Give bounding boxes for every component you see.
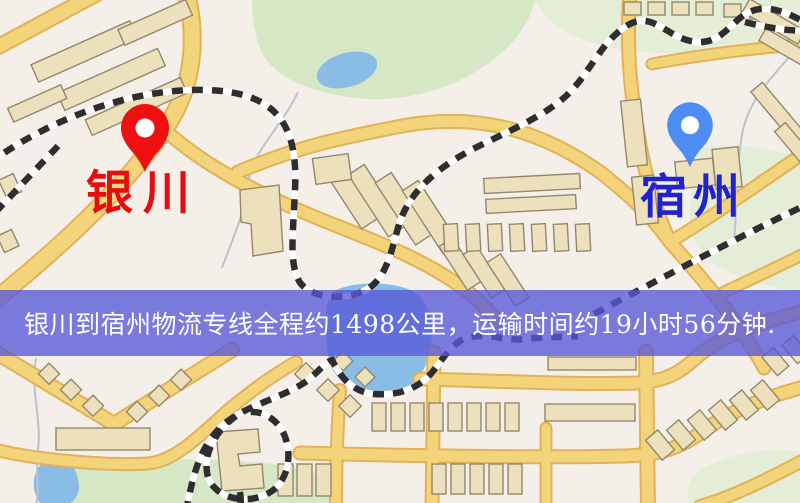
map-canvas[interactable] [0, 0, 800, 503]
map-screenshot: 银川 宿州 银川到宿州物流专线全程约1498公里，运输时间约19小时56分钟. [0, 0, 800, 503]
route-banner: 银川到宿州物流专线全程约1498公里，运输时间约19小时56分钟. [0, 290, 800, 356]
route-banner-text: 银川到宿州物流专线全程约1498公里，运输时间约19小时56分钟. [24, 305, 776, 341]
